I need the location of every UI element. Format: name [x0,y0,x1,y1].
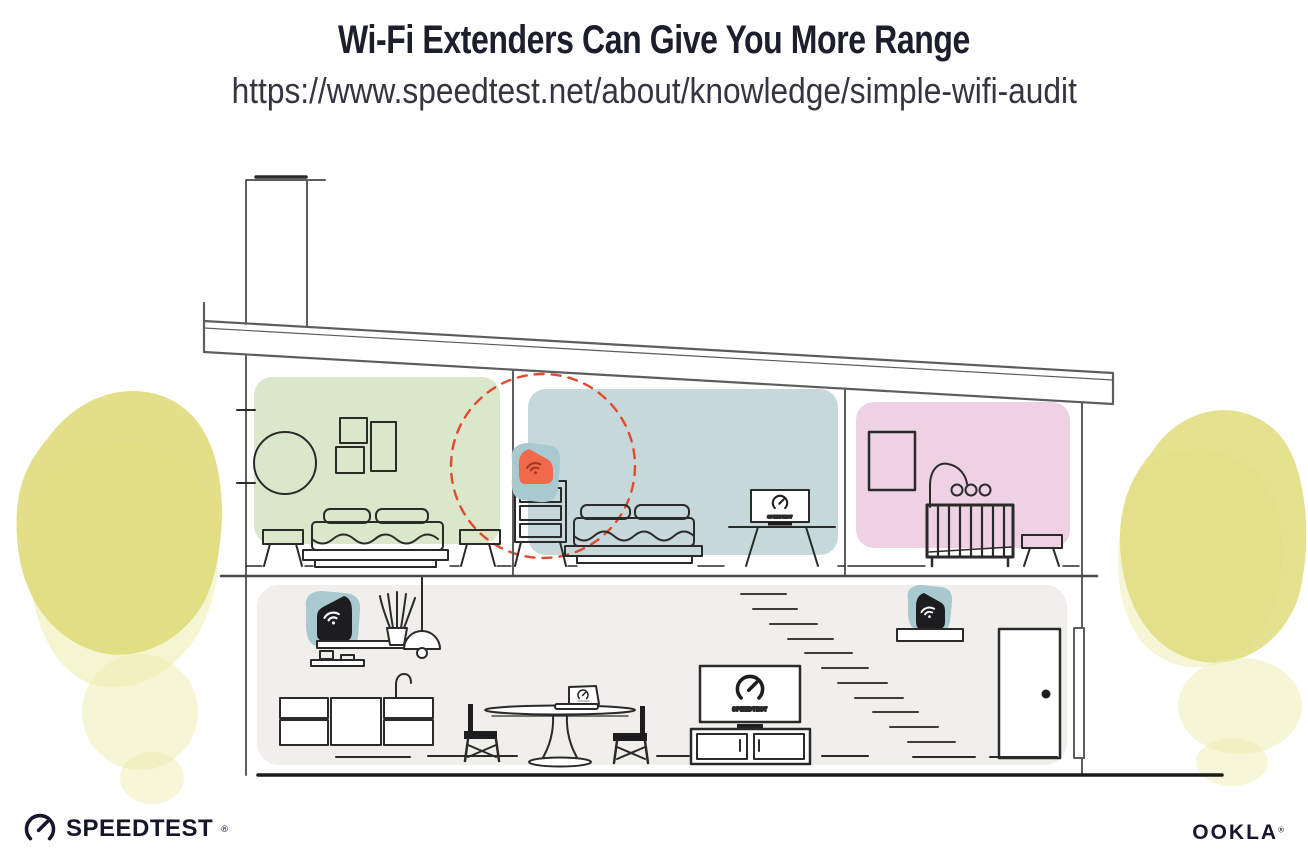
ookla-logo: OOKLA® [1192,821,1284,845]
dining-table-base [529,758,591,767]
bed-platform [315,560,436,567]
speedtest-logo: SPEEDTEST® [22,811,228,847]
nightstand-legs [461,544,495,566]
bed-platform [577,556,692,563]
tv-base [737,724,763,728]
wall-shelf [311,660,364,666]
roof-inner-line [204,328,1113,380]
ookla-wordmark: OOKLA [1192,821,1278,844]
speedtest-gauge-icon [22,811,58,847]
pendant-bulb [417,648,427,658]
dining-chair-back [468,704,473,732]
bed-base [303,550,448,560]
dining-chair-back [640,706,645,734]
tree-left [17,391,222,804]
laptop-screen [569,686,599,705]
stair-shelf [897,629,963,641]
dining-chair-seat [613,733,647,741]
tree-left-base [120,752,184,804]
tree-right-base [1196,738,1268,786]
tree-left-base [82,654,198,770]
tv-brand-label: SPEEDTEST [732,707,767,713]
tree-right [1118,410,1306,786]
laptop-base [555,704,598,709]
stool-legs [1024,548,1059,566]
speedtest-wordmark: SPEEDTEST [66,815,213,843]
plant-pot [387,628,407,645]
dining-chair-seat [464,731,497,739]
kitchen-cabinet [331,698,381,745]
chimney [246,180,325,327]
living-tv-screen [700,666,800,722]
infographic-page: Wi-Fi Extenders Can Give You More Range … [0,0,1308,861]
front-door [999,629,1060,758]
tree-left-blob [17,391,222,655]
tv-base [768,522,792,526]
wifi-extender-upstairs [512,443,560,502]
nightstand-legs [264,544,302,566]
kitchen-cabinet [384,698,433,718]
kitchen-cabinet [280,720,328,745]
tree-right-blob [1120,410,1306,663]
door-sidelight [1074,628,1084,758]
door-knob [1042,690,1051,699]
tv-brand-label: SPEEDTEST [768,515,793,519]
registered-mark: ® [1278,826,1284,835]
registered-mark: ® [221,824,228,834]
kitchen-cabinet [384,720,433,745]
house-illustration: SPEEDTEST [0,0,1308,861]
kitchen-cabinet [280,698,328,718]
